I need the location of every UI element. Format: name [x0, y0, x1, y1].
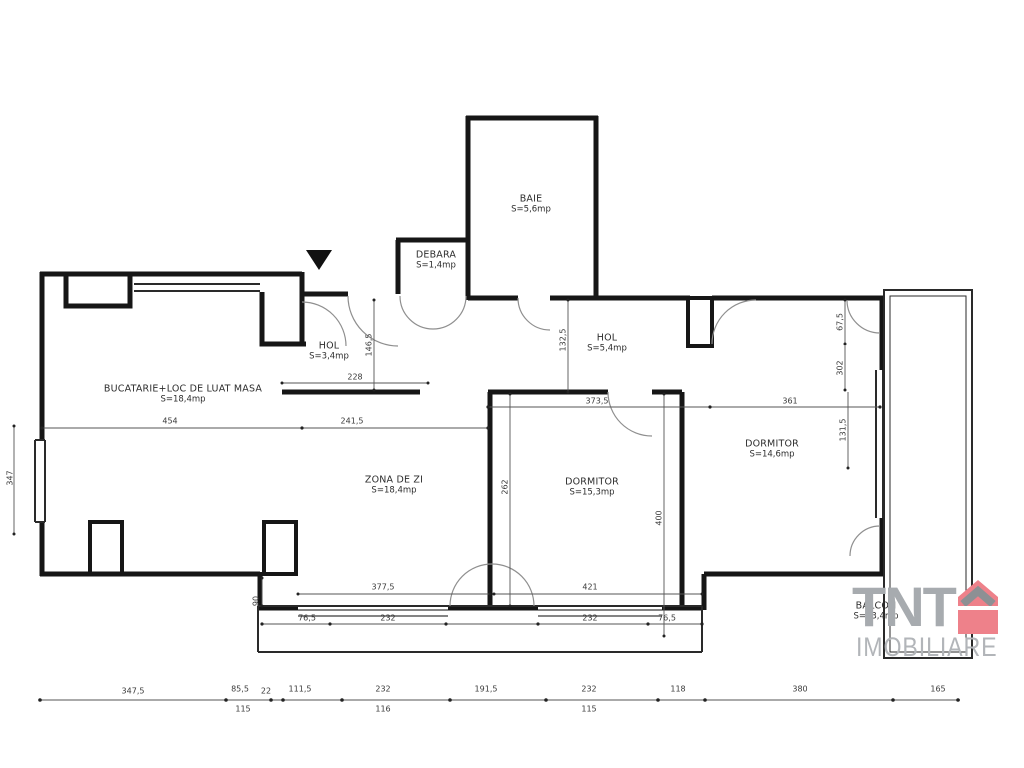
- room-label-dormitor-right: DORMITOR S=14,6mp: [745, 439, 799, 460]
- dim-label: 116: [375, 705, 390, 714]
- room-name: BUCATARIE+LOC DE LUAT MASA: [104, 384, 262, 395]
- dim-label: 22: [261, 687, 271, 696]
- dimension-ticks: [13, 299, 960, 702]
- room-name: HOL: [309, 341, 349, 352]
- room-name: ZONA DE ZI: [365, 475, 423, 486]
- dim-label: 232: [582, 614, 597, 623]
- room-area: S=18,4mp: [365, 486, 423, 496]
- room-label-hol-left: HOL S=3,4mp: [309, 341, 349, 362]
- room-name: BAIE: [511, 194, 551, 205]
- dim-label: 115: [235, 705, 250, 714]
- entrance-marker-icon: [306, 250, 332, 270]
- dim-label: 132,5: [559, 329, 568, 352]
- dim-label: 232: [581, 685, 596, 694]
- room-area: S=15,3mp: [565, 488, 619, 498]
- dim-label: 421: [582, 583, 597, 592]
- room-label-dormitor-mid: DORMITOR S=15,3mp: [565, 477, 619, 498]
- dim-label: 302: [836, 360, 845, 375]
- room-label-debara: DEBARA S=1,4mp: [416, 250, 456, 271]
- room-area: S=1,4mp: [416, 261, 456, 271]
- room-name: DORMITOR: [745, 439, 799, 450]
- windows-and-rails: [35, 284, 972, 658]
- room-area: S=5,4mp: [587, 344, 627, 354]
- dim-label: 76,5: [658, 614, 676, 623]
- room-label-baie: BAIE S=5,6mp: [511, 194, 551, 215]
- room-label-hol-right: HOL S=5,4mp: [587, 333, 627, 354]
- room-area: S=3,4mp: [309, 352, 349, 362]
- room-label-bucatarie: BUCATARIE+LOC DE LUAT MASA S=18,4mp: [104, 384, 262, 405]
- agency-watermark: TNT IMOBILIARE: [850, 576, 1024, 668]
- dim-label: 380: [792, 685, 807, 694]
- room-area: S=18,4mp: [104, 395, 262, 405]
- dim-label: 111,5: [289, 685, 312, 694]
- dim-label: 85,5: [231, 685, 249, 694]
- dim-label: 115: [581, 705, 596, 714]
- window-glass-lines: [298, 610, 662, 616]
- dim-label: 454: [162, 417, 177, 426]
- dim-label: 232: [375, 685, 390, 694]
- dim-label: 347,5: [122, 687, 145, 696]
- dim-label: 76,5: [298, 614, 316, 623]
- walls-thick: [40, 116, 884, 610]
- dim-label: 131,5: [839, 419, 848, 442]
- house-icon: [958, 580, 998, 634]
- room-name: HOL: [587, 333, 627, 344]
- dim-label: 347: [6, 470, 15, 485]
- brand-subtitle: IMOBILIARE: [856, 632, 998, 663]
- dim-label: 262: [501, 479, 510, 494]
- brand-name: TNT: [852, 576, 955, 638]
- room-area: S=14,6mp: [745, 450, 799, 460]
- dim-label: 361: [782, 397, 797, 406]
- dim-label: 241,5: [341, 417, 364, 426]
- dim-label: 191,5: [475, 685, 498, 694]
- dim-label: 377,5: [372, 583, 395, 592]
- dim-label: 90: [252, 596, 261, 606]
- room-name: DEBARA: [416, 250, 456, 261]
- dim-label: 118: [670, 685, 685, 694]
- room-label-zona-de-zi: ZONA DE ZI S=18,4mp: [365, 475, 423, 496]
- dim-label: 228: [347, 373, 362, 382]
- dim-label: 67,5: [836, 313, 845, 331]
- dim-label: 232: [380, 614, 395, 623]
- dim-label: 146,5: [365, 334, 374, 357]
- room-area: S=5,6mp: [511, 205, 551, 215]
- room-name: DORMITOR: [565, 477, 619, 488]
- dim-label: 165: [930, 685, 945, 694]
- floorplan-page: BAIE S=5,6mp DEBARA S=1,4mp HOL S=3,4mp …: [0, 0, 1024, 768]
- dim-label: 373,5: [586, 397, 609, 406]
- dim-label: 400: [655, 510, 664, 525]
- dimension-lines: [14, 300, 960, 700]
